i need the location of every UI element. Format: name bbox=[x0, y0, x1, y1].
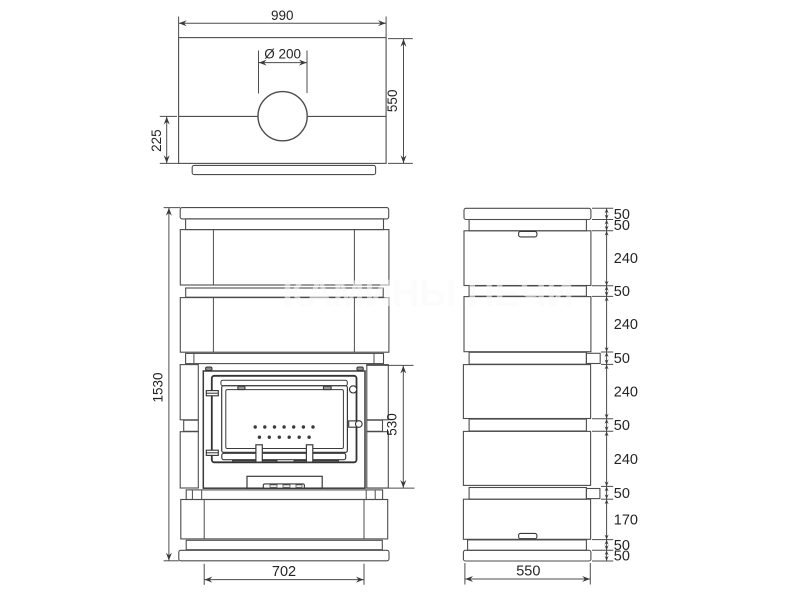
svg-text:50: 50 bbox=[614, 549, 630, 565]
svg-text:550: 550 bbox=[516, 563, 540, 579]
svg-text:240: 240 bbox=[614, 452, 638, 468]
svg-text:50: 50 bbox=[614, 351, 630, 367]
svg-text:702: 702 bbox=[272, 564, 296, 580]
svg-text:50: 50 bbox=[614, 218, 630, 234]
svg-text:240: 240 bbox=[614, 317, 638, 333]
svg-text:50: 50 bbox=[614, 284, 630, 300]
svg-text:170: 170 bbox=[614, 512, 638, 528]
svg-text:50: 50 bbox=[614, 486, 630, 502]
svg-text:240: 240 bbox=[614, 251, 638, 267]
svg-text:1530: 1530 bbox=[150, 372, 165, 402]
svg-text:Ø 200: Ø 200 bbox=[264, 47, 301, 62]
svg-text:550: 550 bbox=[385, 90, 400, 113]
svg-text:50: 50 bbox=[614, 418, 630, 434]
svg-text:530: 530 bbox=[384, 413, 399, 436]
svg-text:КАМИНЫ ПЕЧИ: КАМИНЫ ПЕЧИ bbox=[282, 273, 573, 315]
svg-text:990: 990 bbox=[271, 8, 294, 23]
svg-text:225: 225 bbox=[149, 129, 164, 152]
svg-text:240: 240 bbox=[614, 385, 638, 401]
